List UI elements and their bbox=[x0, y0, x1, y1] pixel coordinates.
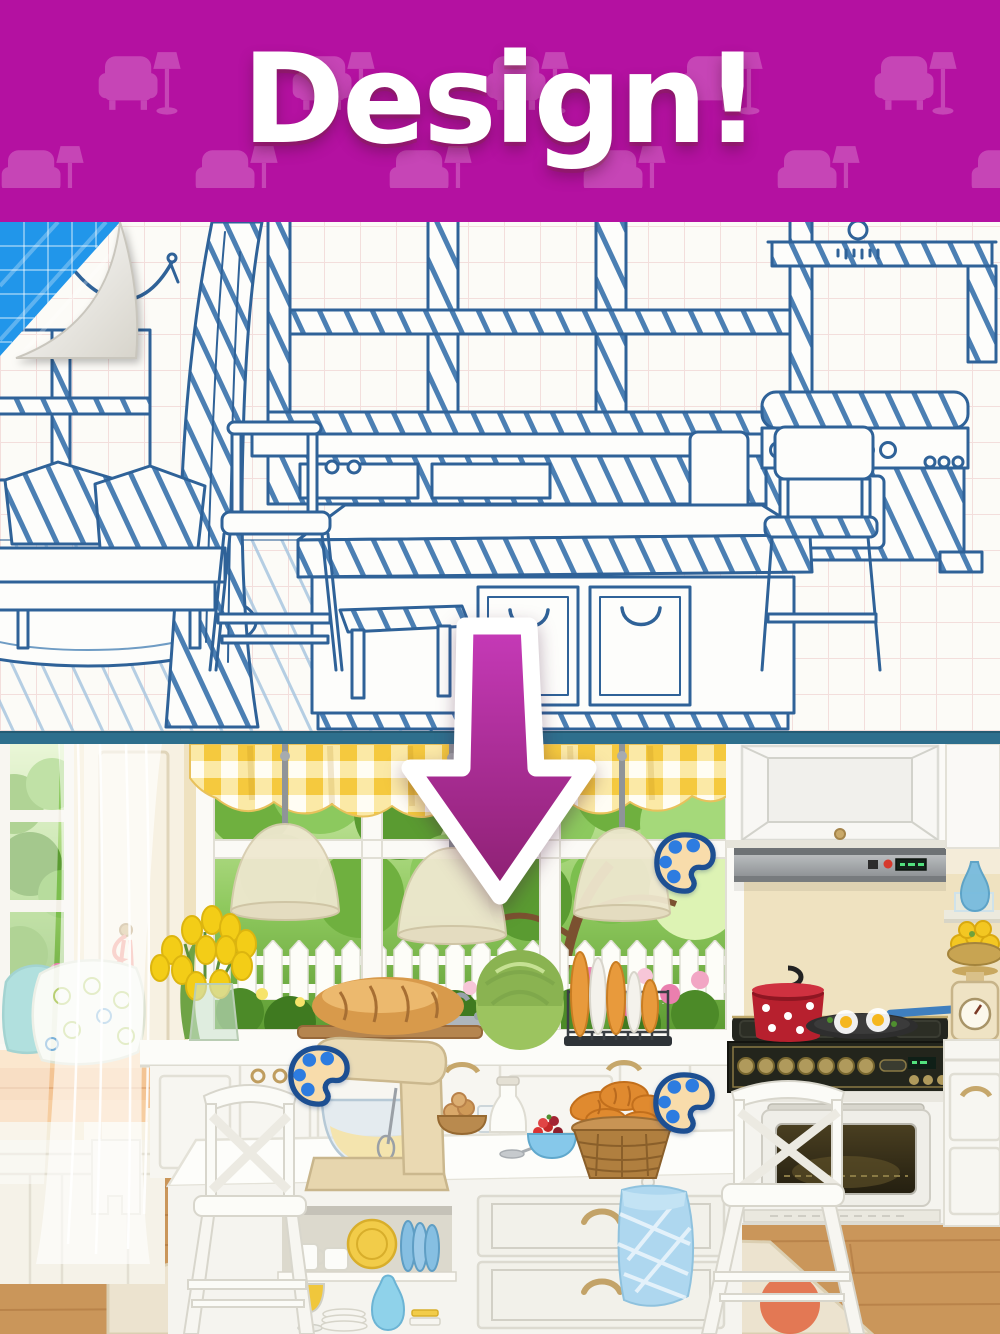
cabbage bbox=[476, 950, 564, 1050]
paint-palette-icon[interactable] bbox=[287, 1044, 351, 1108]
paint-palette-icon[interactable] bbox=[652, 1071, 716, 1135]
sketch-chair-back bbox=[690, 432, 748, 512]
range-hood bbox=[734, 848, 946, 891]
page-curl-corner bbox=[0, 222, 137, 358]
paint-palette-icon[interactable] bbox=[653, 831, 717, 895]
app-store-screenshot: Design! bbox=[0, 0, 1000, 1334]
towel bbox=[618, 1176, 693, 1306]
header-banner: Design! bbox=[0, 0, 1000, 227]
right-lower-cabinet bbox=[944, 1040, 1000, 1226]
page-title: Design! bbox=[0, 28, 1000, 172]
down-arrow-icon bbox=[373, 596, 635, 922]
